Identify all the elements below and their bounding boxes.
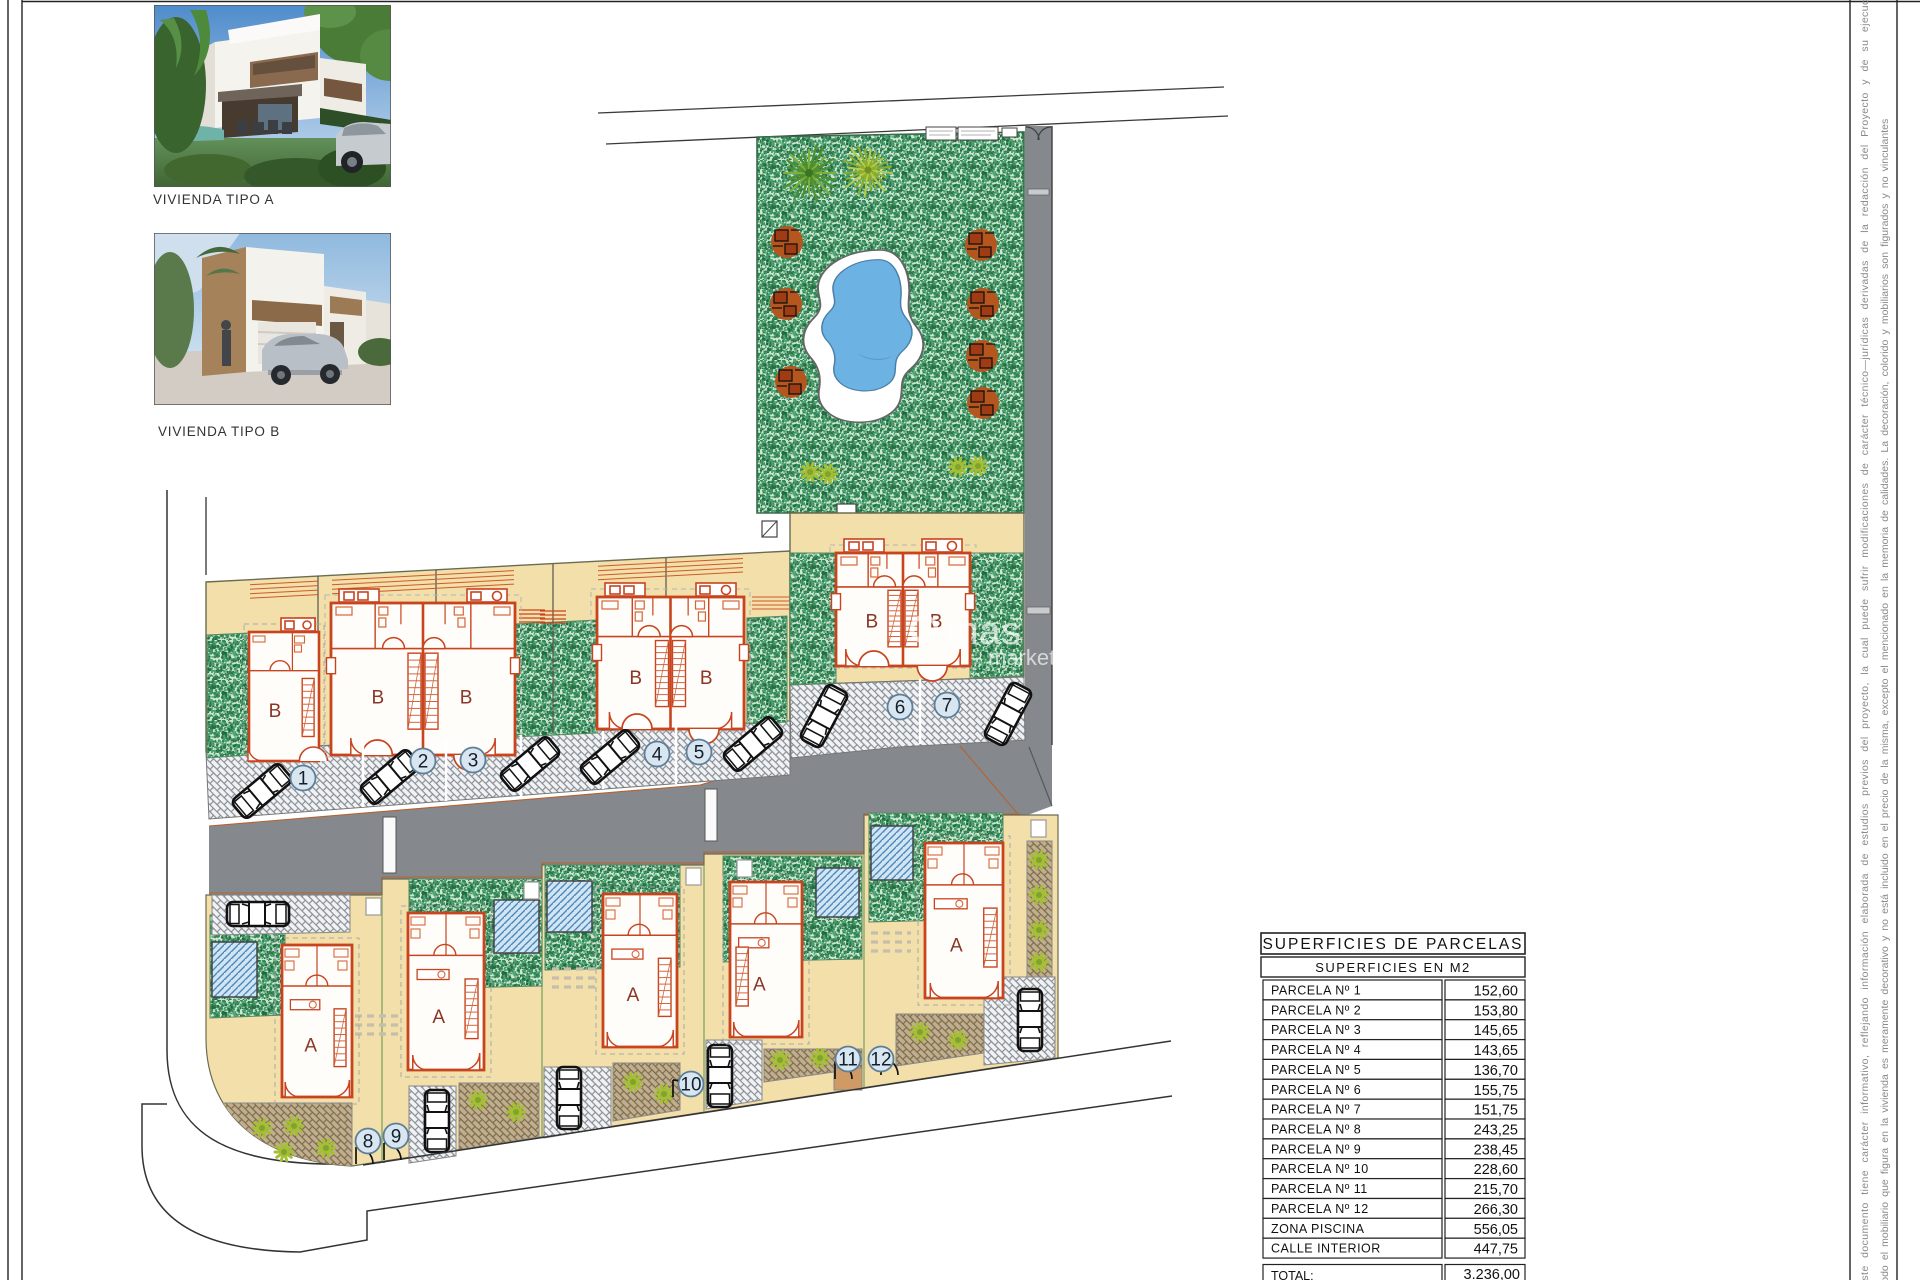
svg-text:2: 2 bbox=[418, 752, 429, 773]
svg-text:155,75: 155,75 bbox=[1474, 1083, 1518, 1099]
svg-text:A: A bbox=[950, 936, 963, 957]
svg-text:238,45: 238,45 bbox=[1474, 1142, 1518, 1158]
svg-text:PARCELA Nº 2: PARCELA Nº 2 bbox=[1271, 1003, 1361, 1017]
svg-text:151,75: 151,75 bbox=[1474, 1103, 1518, 1119]
svg-text:TOTAL:: TOTAL: bbox=[1271, 1269, 1314, 1280]
svg-text:136,70: 136,70 bbox=[1474, 1063, 1518, 1079]
svg-text:SUPERFICIES EN M2: SUPERFICIES EN M2 bbox=[1315, 960, 1471, 975]
svg-text:9: 9 bbox=[391, 1127, 402, 1148]
svg-text:215,70: 215,70 bbox=[1474, 1182, 1518, 1198]
svg-text:Este documento tiene carácter: Este documento tiene carácter informativ… bbox=[1859, 0, 1871, 1280]
svg-text:10: 10 bbox=[680, 1075, 701, 1096]
svg-text:A: A bbox=[753, 975, 766, 996]
svg-text:228,60: 228,60 bbox=[1474, 1162, 1518, 1178]
svg-text:B: B bbox=[865, 612, 878, 633]
svg-text:SUPERFICIES DE PARCELAS: SUPERFICIES DE PARCELAS bbox=[1262, 936, 1523, 953]
svg-text:3.236,00: 3.236,00 bbox=[1464, 1267, 1520, 1280]
svg-text:B: B bbox=[371, 687, 384, 708]
svg-text:7: 7 bbox=[942, 696, 953, 717]
svg-text:447,75: 447,75 bbox=[1474, 1242, 1518, 1258]
svg-text:PARCELA Nº 11: PARCELA Nº 11 bbox=[1271, 1182, 1368, 1196]
svg-text:B: B bbox=[629, 668, 642, 689]
svg-text:6: 6 bbox=[895, 698, 906, 719]
svg-text:PARCELA Nº 1: PARCELA Nº 1 bbox=[1271, 984, 1361, 998]
svg-text:PARCELA Nº 12: PARCELA Nº 12 bbox=[1271, 1202, 1369, 1216]
svg-text:PARCELA Nº 5: PARCELA Nº 5 bbox=[1271, 1063, 1361, 1077]
svg-text:PARCELA Nº 8: PARCELA Nº 8 bbox=[1271, 1123, 1361, 1137]
svg-text:243,25: 243,25 bbox=[1474, 1123, 1518, 1139]
svg-text:153,80: 153,80 bbox=[1474, 1003, 1518, 1019]
svg-text:556,05: 556,05 bbox=[1474, 1222, 1518, 1238]
svg-text:PARCELA Nº 6: PARCELA Nº 6 bbox=[1271, 1083, 1361, 1097]
svg-text:A: A bbox=[432, 1007, 445, 1028]
svg-text:PARCELA Nº 10: PARCELA Nº 10 bbox=[1271, 1162, 1369, 1176]
svg-text:ZONA PISCINA: ZONA PISCINA bbox=[1271, 1222, 1365, 1236]
svg-text:PARCELA Nº 7: PARCELA Nº 7 bbox=[1271, 1103, 1361, 1117]
svg-text:A: A bbox=[304, 1035, 317, 1056]
svg-text:11: 11 bbox=[838, 1050, 858, 1071]
svg-text:VIVIENDA TIPO A: VIVIENDA TIPO A bbox=[153, 192, 274, 207]
svg-text:4: 4 bbox=[652, 745, 663, 766]
svg-text:145,65: 145,65 bbox=[1474, 1023, 1518, 1039]
svg-text:143,65: 143,65 bbox=[1474, 1043, 1518, 1059]
svg-text:Todo el mobiliario que figura: Todo el mobiliario que figura en la vivi… bbox=[1879, 119, 1891, 1280]
svg-text:3: 3 bbox=[468, 751, 479, 772]
svg-text:12: 12 bbox=[870, 1050, 891, 1071]
svg-text:PARCELA Nº 4: PARCELA Nº 4 bbox=[1271, 1043, 1361, 1057]
svg-text:PARCELA Nº 3: PARCELA Nº 3 bbox=[1271, 1023, 1361, 1037]
svg-text:B: B bbox=[700, 668, 713, 689]
svg-text:A: A bbox=[627, 985, 640, 1006]
svg-text:PARCELA Nº 9: PARCELA Nº 9 bbox=[1271, 1142, 1361, 1156]
svg-text:1: 1 bbox=[298, 769, 309, 790]
svg-text:VIVIENDA TIPO B: VIVIENDA TIPO B bbox=[158, 424, 280, 439]
svg-text:market: market bbox=[988, 645, 1055, 670]
svg-text:8: 8 bbox=[363, 1132, 374, 1153]
svg-text:CALLE INTERIOR: CALLE INTERIOR bbox=[1271, 1242, 1381, 1256]
svg-text:B: B bbox=[460, 687, 473, 708]
svg-text:B: B bbox=[269, 701, 282, 722]
svg-text:152,60: 152,60 bbox=[1474, 984, 1518, 1000]
svg-text:266,30: 266,30 bbox=[1474, 1202, 1518, 1218]
svg-text:5: 5 bbox=[694, 743, 705, 764]
